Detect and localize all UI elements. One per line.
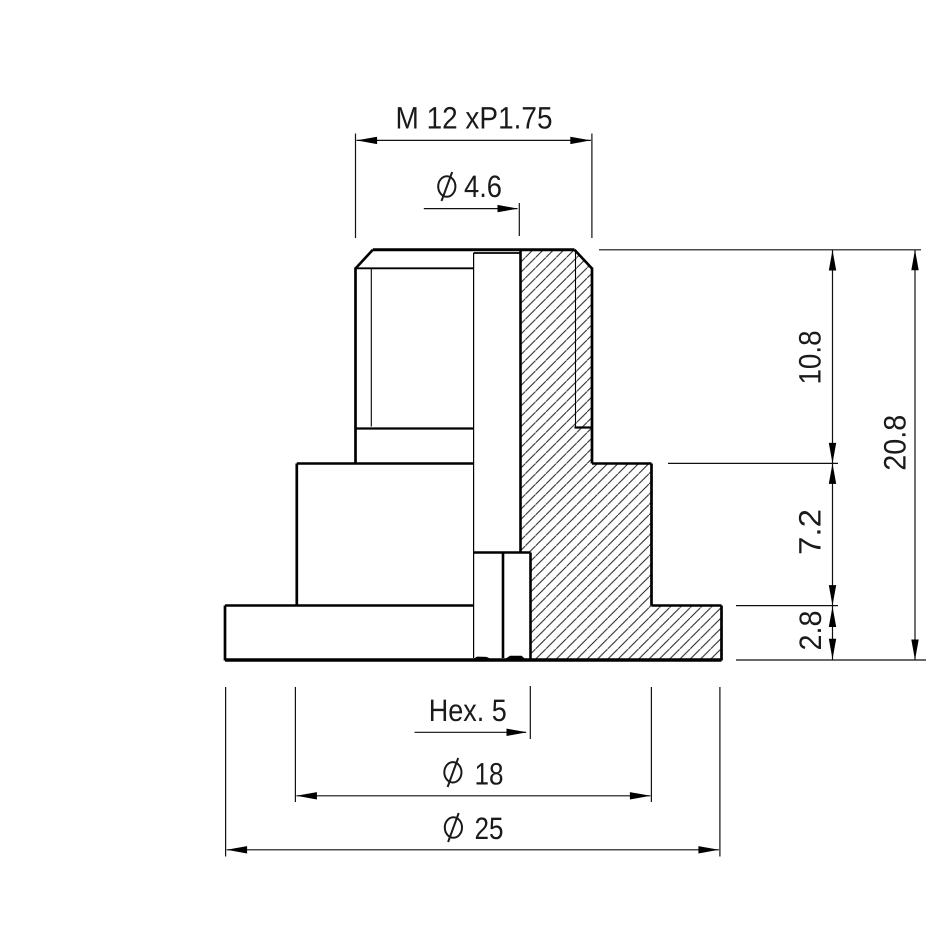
svg-text:Hex. 5: Hex. 5	[429, 693, 507, 728]
svg-text:4.6: 4.6	[464, 169, 502, 204]
svg-text:10.8: 10.8	[793, 331, 828, 385]
svg-text:18: 18	[475, 757, 504, 792]
svg-text:25: 25	[475, 811, 504, 846]
svg-text:2.8: 2.8	[793, 611, 828, 651]
svg-text:M 12 xP1.75: M 12 xP1.75	[396, 101, 553, 136]
svg-text:20.8: 20.8	[878, 415, 913, 471]
svg-text:7.2: 7.2	[793, 509, 828, 555]
